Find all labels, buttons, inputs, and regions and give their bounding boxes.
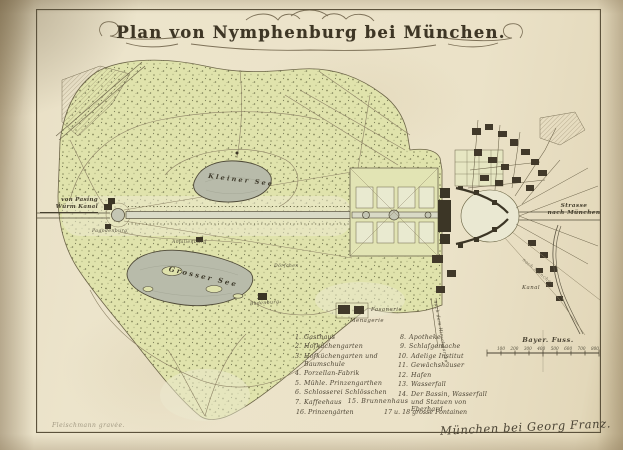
legend-item-label: Hafen bbox=[411, 372, 431, 380]
legend-item-number: 3. bbox=[293, 353, 301, 369]
scale-bar-caption: Bayer. Fuss. bbox=[492, 336, 604, 344]
legend-item: 6. Schlosserei Schlösschen bbox=[293, 389, 390, 397]
legend-item-label: Wasserfall bbox=[411, 381, 446, 389]
legend-item-label: Schlosserei Schlösschen bbox=[304, 389, 387, 397]
legend-row-15: 15. Brunnenhaus bbox=[318, 398, 438, 405]
legend-item-label: Apotheke bbox=[409, 334, 441, 342]
legend-item: 10. Adelige Institut bbox=[398, 353, 495, 361]
scale-tick-label: 400 bbox=[537, 346, 545, 351]
scale-tick-label: 700 bbox=[578, 346, 586, 351]
legend-item: 5. Mühle. Prinzengarthen bbox=[293, 380, 390, 388]
scale-tick-label: 100 bbox=[497, 346, 505, 351]
label-fasanerie: Fasanerie bbox=[371, 307, 402, 313]
title-banner: Plan von Nymphenburg bei München. bbox=[96, 10, 526, 54]
label-amalienburg: Amalienburg bbox=[172, 240, 206, 245]
legend-item-number: 11. bbox=[398, 362, 408, 370]
label-von-pasing: von Pasing Würm Kanal bbox=[40, 197, 98, 213]
legend-row-16: 16. Prinzengärten bbox=[296, 409, 354, 416]
legend-item-label: Schlafgemache bbox=[409, 343, 460, 351]
legend-item: 1. Gasthaus bbox=[293, 334, 390, 342]
scanned-map-page: { "title": "Plan von Nymphenburg bei Mün… bbox=[0, 0, 623, 450]
legend-item: 4. Porzellan-Fabrik bbox=[293, 370, 390, 378]
legend-item-number: 13. bbox=[398, 381, 408, 389]
legend-item-label: Mühle. Prinzengarthen bbox=[304, 380, 382, 388]
label-menagerie: Menagerie bbox=[350, 318, 384, 324]
legend-item: 12. Hafen bbox=[398, 372, 495, 380]
legend-item: 9. Schlafgemache bbox=[398, 343, 495, 351]
scale-tick-label: 200 bbox=[510, 346, 518, 351]
map-title: Plan von Nymphenburg bei München. bbox=[96, 23, 526, 42]
legend-item-number: 12. bbox=[398, 372, 408, 380]
legend-item-label: Gasthaus bbox=[304, 334, 335, 342]
engraver-credit: Fleischmann gravée. bbox=[52, 422, 125, 429]
label-strasse-nach-muenchen: Strasse nach München bbox=[543, 203, 605, 217]
legend-item: 2. Hofküchengarten bbox=[293, 343, 390, 351]
scale-tick-label: 500 bbox=[551, 346, 559, 351]
legend-item-number: 9. bbox=[398, 343, 406, 351]
legend-item-label: Adelige Institut bbox=[411, 353, 464, 361]
legend-item: 3. Hofküchengarten und Baumschule bbox=[293, 353, 390, 369]
legend-item: 11. Gewächshäuser bbox=[398, 362, 495, 370]
label-wuerm-kanal: Würm Kanal bbox=[40, 204, 98, 212]
legend-item: 8. Apotheke bbox=[398, 334, 495, 342]
scale-tick-label: 300 bbox=[524, 346, 532, 351]
legend-item-label: Hofküchengarten und Baumschule bbox=[304, 353, 390, 369]
legend-item-number: 6. bbox=[293, 389, 301, 397]
legend-item-number: 7. bbox=[293, 399, 301, 407]
label-kanal: Kanal bbox=[522, 285, 540, 291]
legend-item-label: Hofküchengarten bbox=[304, 343, 363, 351]
scale-tick-label: 800 bbox=[591, 346, 599, 351]
legend-item-number: 1. bbox=[293, 334, 301, 342]
legend-item-number: 4. bbox=[293, 370, 301, 378]
legend-item: 13. Wasserfall bbox=[398, 381, 495, 389]
legend-item-number: 8. bbox=[398, 334, 406, 342]
legend-item-number: 2. bbox=[293, 343, 301, 351]
label-pagodenburg: Pagodenburg bbox=[92, 229, 127, 234]
legend-row-17: 17 u. 18 grosse Fontainen bbox=[384, 409, 467, 416]
legend-item-label: Gewächshäuser bbox=[411, 362, 464, 370]
legend-item-number: 5. bbox=[293, 380, 301, 388]
legend-item-label: Porzellan-Fabrik bbox=[304, 370, 360, 378]
label-nach-muenchen: nach München bbox=[543, 210, 605, 217]
label-doerfchen: Dörfchen bbox=[274, 264, 299, 269]
scale-tick-label: 600 bbox=[564, 346, 572, 351]
legend-item-number: 10. bbox=[398, 353, 408, 361]
scale-bar-tick-labels: 100200300400500600700800 bbox=[497, 346, 599, 351]
